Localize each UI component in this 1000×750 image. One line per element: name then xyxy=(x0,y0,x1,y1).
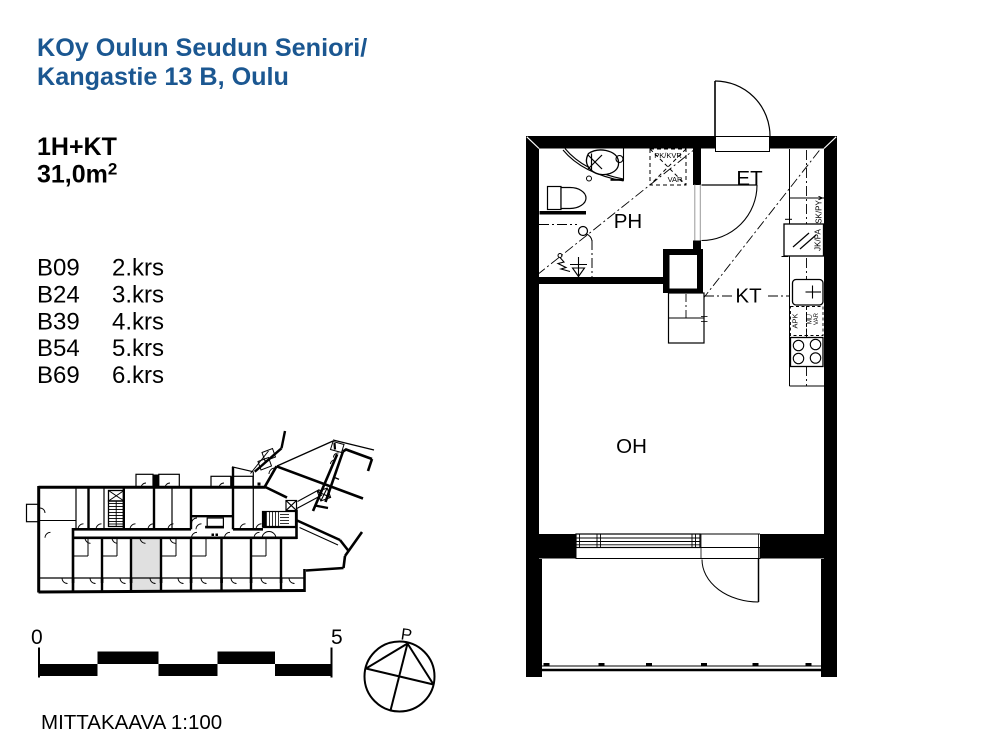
svg-text:Kangastie 13 B, Oulu: Kangastie 13 B, Oulu xyxy=(37,63,289,91)
svg-text:4.krs: 4.krs xyxy=(112,308,164,335)
svg-text:5.krs: 5.krs xyxy=(112,335,164,362)
svg-text:KT: KT xyxy=(735,285,762,308)
svg-text:5: 5 xyxy=(331,626,343,649)
svg-text:B09: B09 xyxy=(37,255,80,282)
svg-text:2.krs: 2.krs xyxy=(112,255,164,282)
svg-text:B54: B54 xyxy=(37,335,80,362)
svg-text:VAR: VAR xyxy=(814,312,820,325)
svg-text:PH: PH xyxy=(614,210,642,233)
svg-text:JK/PA: JK/PA xyxy=(814,229,823,251)
svg-text:6.krs: 6.krs xyxy=(112,362,164,389)
svg-text:PK/KVR: PK/KVR xyxy=(654,151,682,160)
svg-text:MITTAKAAVA 1:100: MITTAKAAVA 1:100 xyxy=(41,711,222,734)
svg-text:ET: ET xyxy=(736,167,763,190)
svg-text:VAR: VAR xyxy=(668,175,683,184)
svg-text:SK/PY: SK/PY xyxy=(815,200,824,224)
svg-text:KOy Oulun Seudun Seniori/: KOy Oulun Seudun Seniori/ xyxy=(37,34,367,62)
svg-text:1H+KT: 1H+KT xyxy=(37,133,117,161)
svg-text:APK: APK xyxy=(791,313,800,328)
svg-text:31,0m2: 31,0m2 xyxy=(37,160,117,189)
svg-text:B69: B69 xyxy=(37,362,80,389)
svg-text:OH: OH xyxy=(616,435,647,458)
svg-text:3.krs: 3.krs xyxy=(112,281,164,308)
svg-text:B39: B39 xyxy=(37,308,80,335)
svg-text:ML/: ML/ xyxy=(808,314,814,324)
svg-text:B24: B24 xyxy=(37,281,80,308)
svg-text:0: 0 xyxy=(31,626,43,649)
